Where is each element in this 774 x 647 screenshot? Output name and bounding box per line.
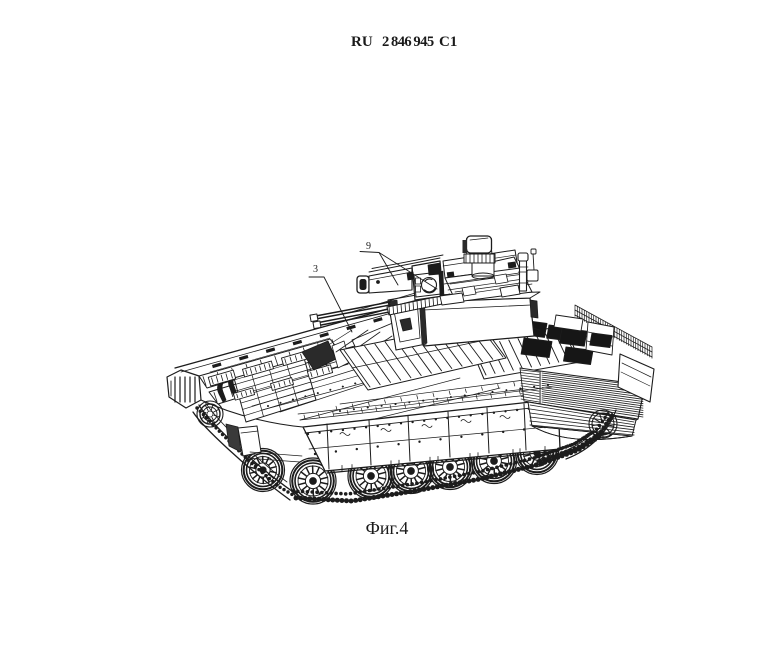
- svg-text:3: 3: [313, 264, 318, 275]
- svg-text:9: 9: [366, 241, 371, 252]
